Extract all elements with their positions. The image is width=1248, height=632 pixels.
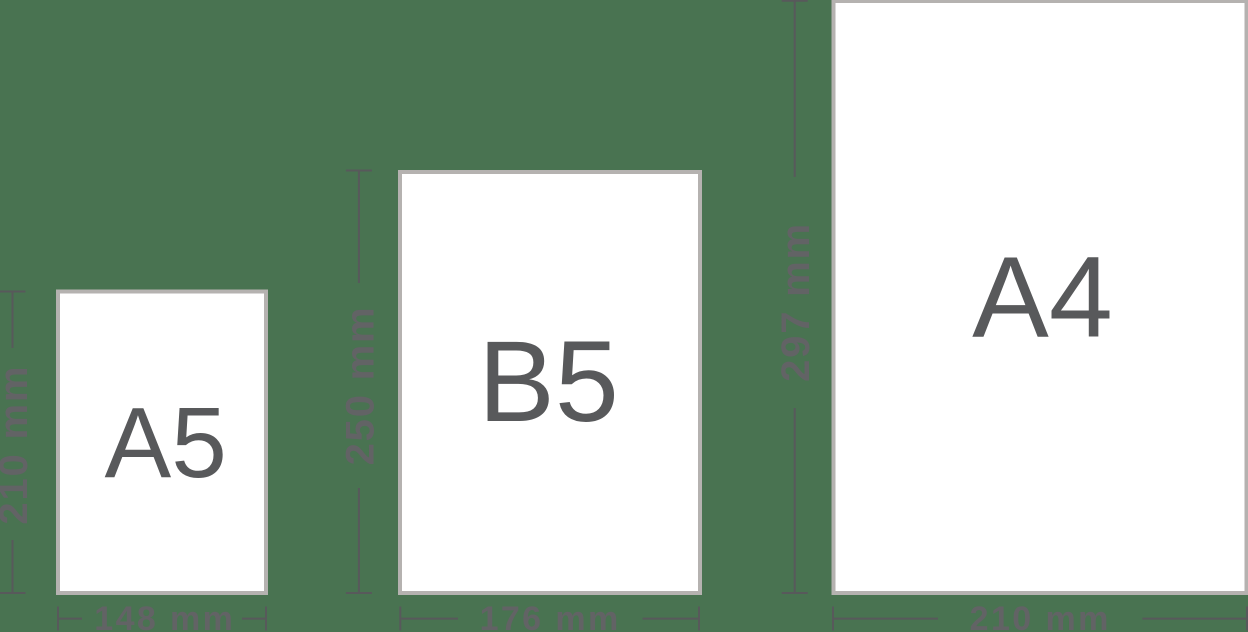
svg-text:250 mm: 250 mm <box>338 306 382 466</box>
svg-text:210 mm: 210 mm <box>970 600 1111 632</box>
svg-text:A5: A5 <box>105 387 227 499</box>
svg-text:B5: B5 <box>478 318 619 446</box>
svg-text:176 mm: 176 mm <box>480 600 621 632</box>
svg-text:297 mm: 297 mm <box>774 222 818 382</box>
svg-text:148 mm: 148 mm <box>94 600 235 632</box>
svg-text:210 mm: 210 mm <box>0 365 36 525</box>
svg-text:A4: A4 <box>972 234 1113 362</box>
